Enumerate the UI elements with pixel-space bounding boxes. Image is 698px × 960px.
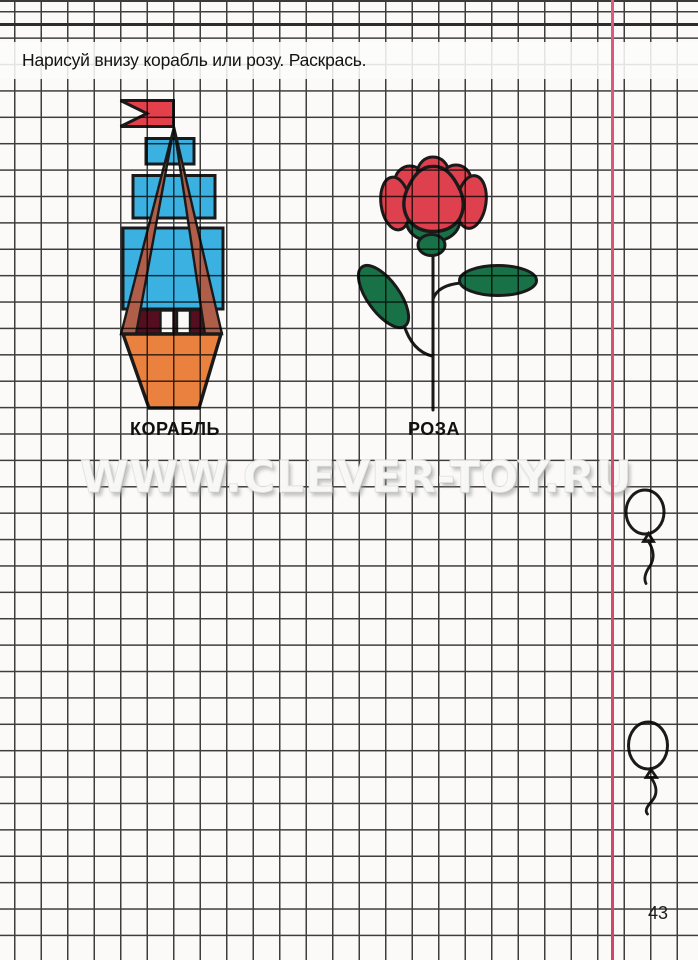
- balloon-string: [645, 542, 653, 584]
- ship-sail-block-medium: [133, 176, 215, 219]
- rose-calyx-bud: [418, 235, 445, 256]
- rose-figure: [349, 157, 536, 410]
- ship-figure: [121, 101, 224, 409]
- ship-hull: [123, 334, 221, 408]
- balloon-string: [646, 778, 656, 815]
- balloon-body: [629, 722, 668, 769]
- workbook-page: Нарисуй внизу корабль или розу. Раскрась…: [0, 0, 698, 960]
- rose-leaf-right: [460, 266, 537, 296]
- balloon-body: [626, 490, 664, 534]
- ship-window-right: [177, 311, 190, 334]
- page-number: 43: [641, 903, 675, 924]
- ship-flag-icon: [121, 101, 174, 127]
- balloon-icon-1: [626, 490, 664, 584]
- ship-window-left: [161, 311, 174, 334]
- balloon-icon-2: [629, 722, 668, 814]
- rose-caption: РОЗА: [408, 419, 460, 440]
- rose-leaf-left: [349, 258, 418, 336]
- printed-figures: [0, 0, 698, 960]
- rose-petiole-left: [404, 325, 432, 356]
- ship-caption: КОРАБЛЬ: [130, 419, 220, 440]
- rose-petiole-right: [433, 283, 461, 299]
